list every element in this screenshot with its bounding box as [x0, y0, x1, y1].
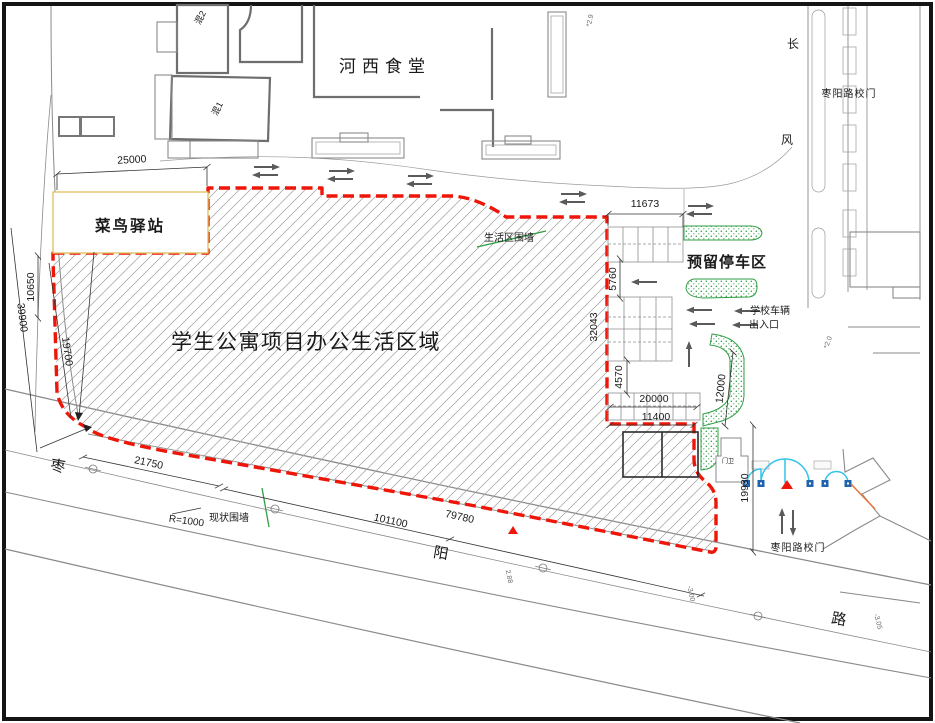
dim-5760: 5760: [607, 267, 619, 291]
reserved-parking-label: 预留停车区: [687, 253, 767, 271]
site-plan-page: 25000 10650 39900 19700 21750 101100 797…: [0, 0, 935, 723]
road-name-lu: 路: [830, 610, 848, 629]
dim-11400: 11400: [642, 411, 671, 423]
dim-10650: 10650: [25, 272, 37, 301]
canteen-watermark: 河西食堂: [339, 57, 431, 76]
site-plan-canvas: 25000 10650 39900 19700 21750 101100 797…: [0, 0, 935, 723]
dim-25000: 25000: [117, 153, 147, 167]
gate-north-label: 枣阳路校门: [822, 87, 877, 100]
dim-20000: 20000: [639, 393, 668, 405]
road-name-yang: 阳: [432, 544, 450, 563]
road-name-zao: 枣: [49, 457, 67, 476]
dim-19930: 19930: [739, 473, 751, 502]
dim-4570: 4570: [613, 365, 625, 389]
side-road-name-chang: 长: [787, 37, 799, 51]
living-wall-label: 生活区围墙: [484, 231, 534, 244]
school-vehicle-label-1: 学校车辆: [750, 304, 790, 317]
guard-house-label: 门卫: [722, 457, 734, 465]
dim-11673: 11673: [631, 198, 660, 210]
school-vehicle-label-2: 出入口: [749, 318, 779, 331]
cainiao-station-label: 菜鸟驿站: [94, 216, 165, 235]
main-area-label: 学生公寓项目办公生活区域: [171, 331, 441, 354]
existing-wall-label: 现状围墙: [209, 511, 249, 524]
side-road-name-feng: 风: [781, 133, 793, 147]
dim-32043: 32043: [588, 312, 600, 341]
gate-south-label: 枣阳路校门: [771, 541, 826, 554]
